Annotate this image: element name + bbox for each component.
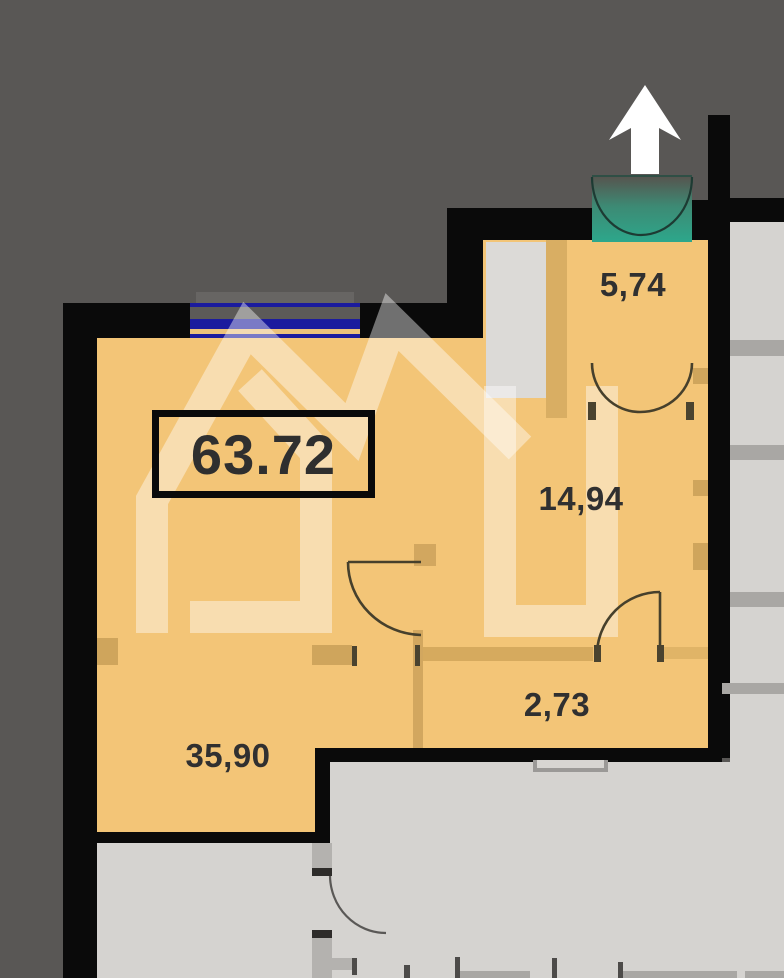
entrance-door-arcs — [592, 177, 692, 235]
room-label-bedroom: 14,94 — [501, 480, 661, 518]
floor-plan: 63.72 5,74 14,94 2,73 35,90 — [0, 0, 784, 978]
corridor-door-arc — [330, 875, 386, 933]
total-area-box: 63.72 — [152, 410, 375, 498]
plan-overlay — [0, 0, 784, 978]
room-label-entrance-hall: 5,74 — [573, 266, 693, 304]
room-label-living-room: 35,90 — [158, 737, 298, 775]
room-label-corridor: 2,73 — [497, 686, 617, 724]
total-area-value: 63.72 — [191, 422, 336, 487]
up-arrow-icon — [609, 85, 681, 174]
